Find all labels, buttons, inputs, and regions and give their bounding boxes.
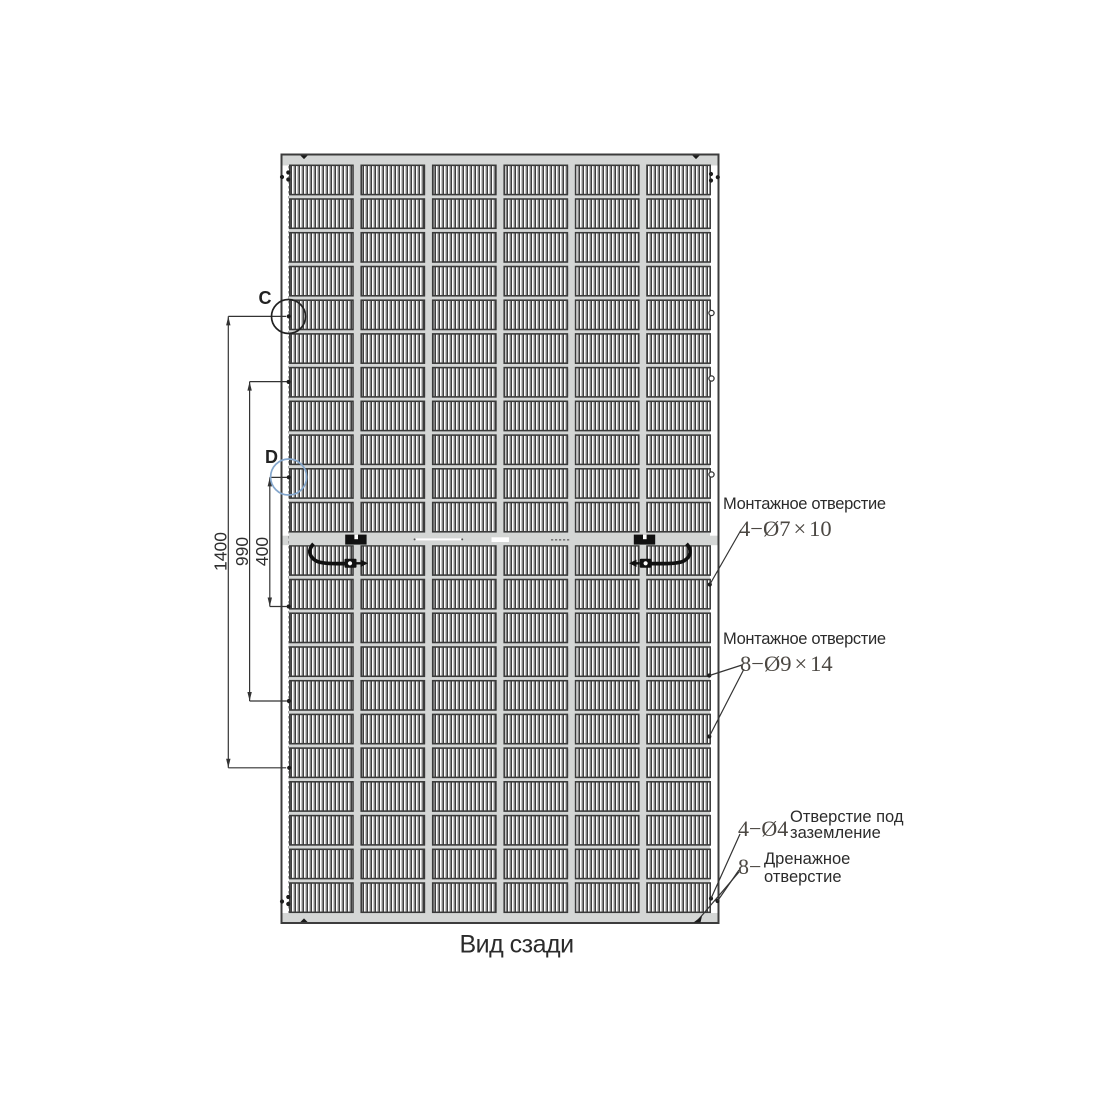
svg-text:C: C: [259, 288, 272, 308]
svg-text:Монтажное отверстие: Монтажное отверстие: [723, 495, 886, 513]
svg-text:D: D: [265, 447, 278, 467]
svg-text:отверстие: отверстие: [764, 868, 842, 886]
svg-text:Вид сзади: Вид сзади: [459, 931, 573, 959]
svg-text:400: 400: [252, 537, 272, 566]
svg-text:заземление: заземление: [790, 824, 881, 842]
svg-text:1400: 1400: [211, 532, 231, 571]
svg-text:990: 990: [232, 537, 252, 566]
svg-text:4−Ø7×10: 4−Ø7×10: [739, 516, 832, 541]
svg-text:4−Ø4: 4−Ø4: [738, 816, 788, 841]
svg-text:8−: 8−: [738, 854, 761, 879]
svg-text:Дренажное: Дренажное: [764, 850, 850, 868]
svg-text:8−Ø9×14: 8−Ø9×14: [740, 651, 833, 676]
svg-text:Монтажное отверстие: Монтажное отверстие: [723, 630, 886, 648]
